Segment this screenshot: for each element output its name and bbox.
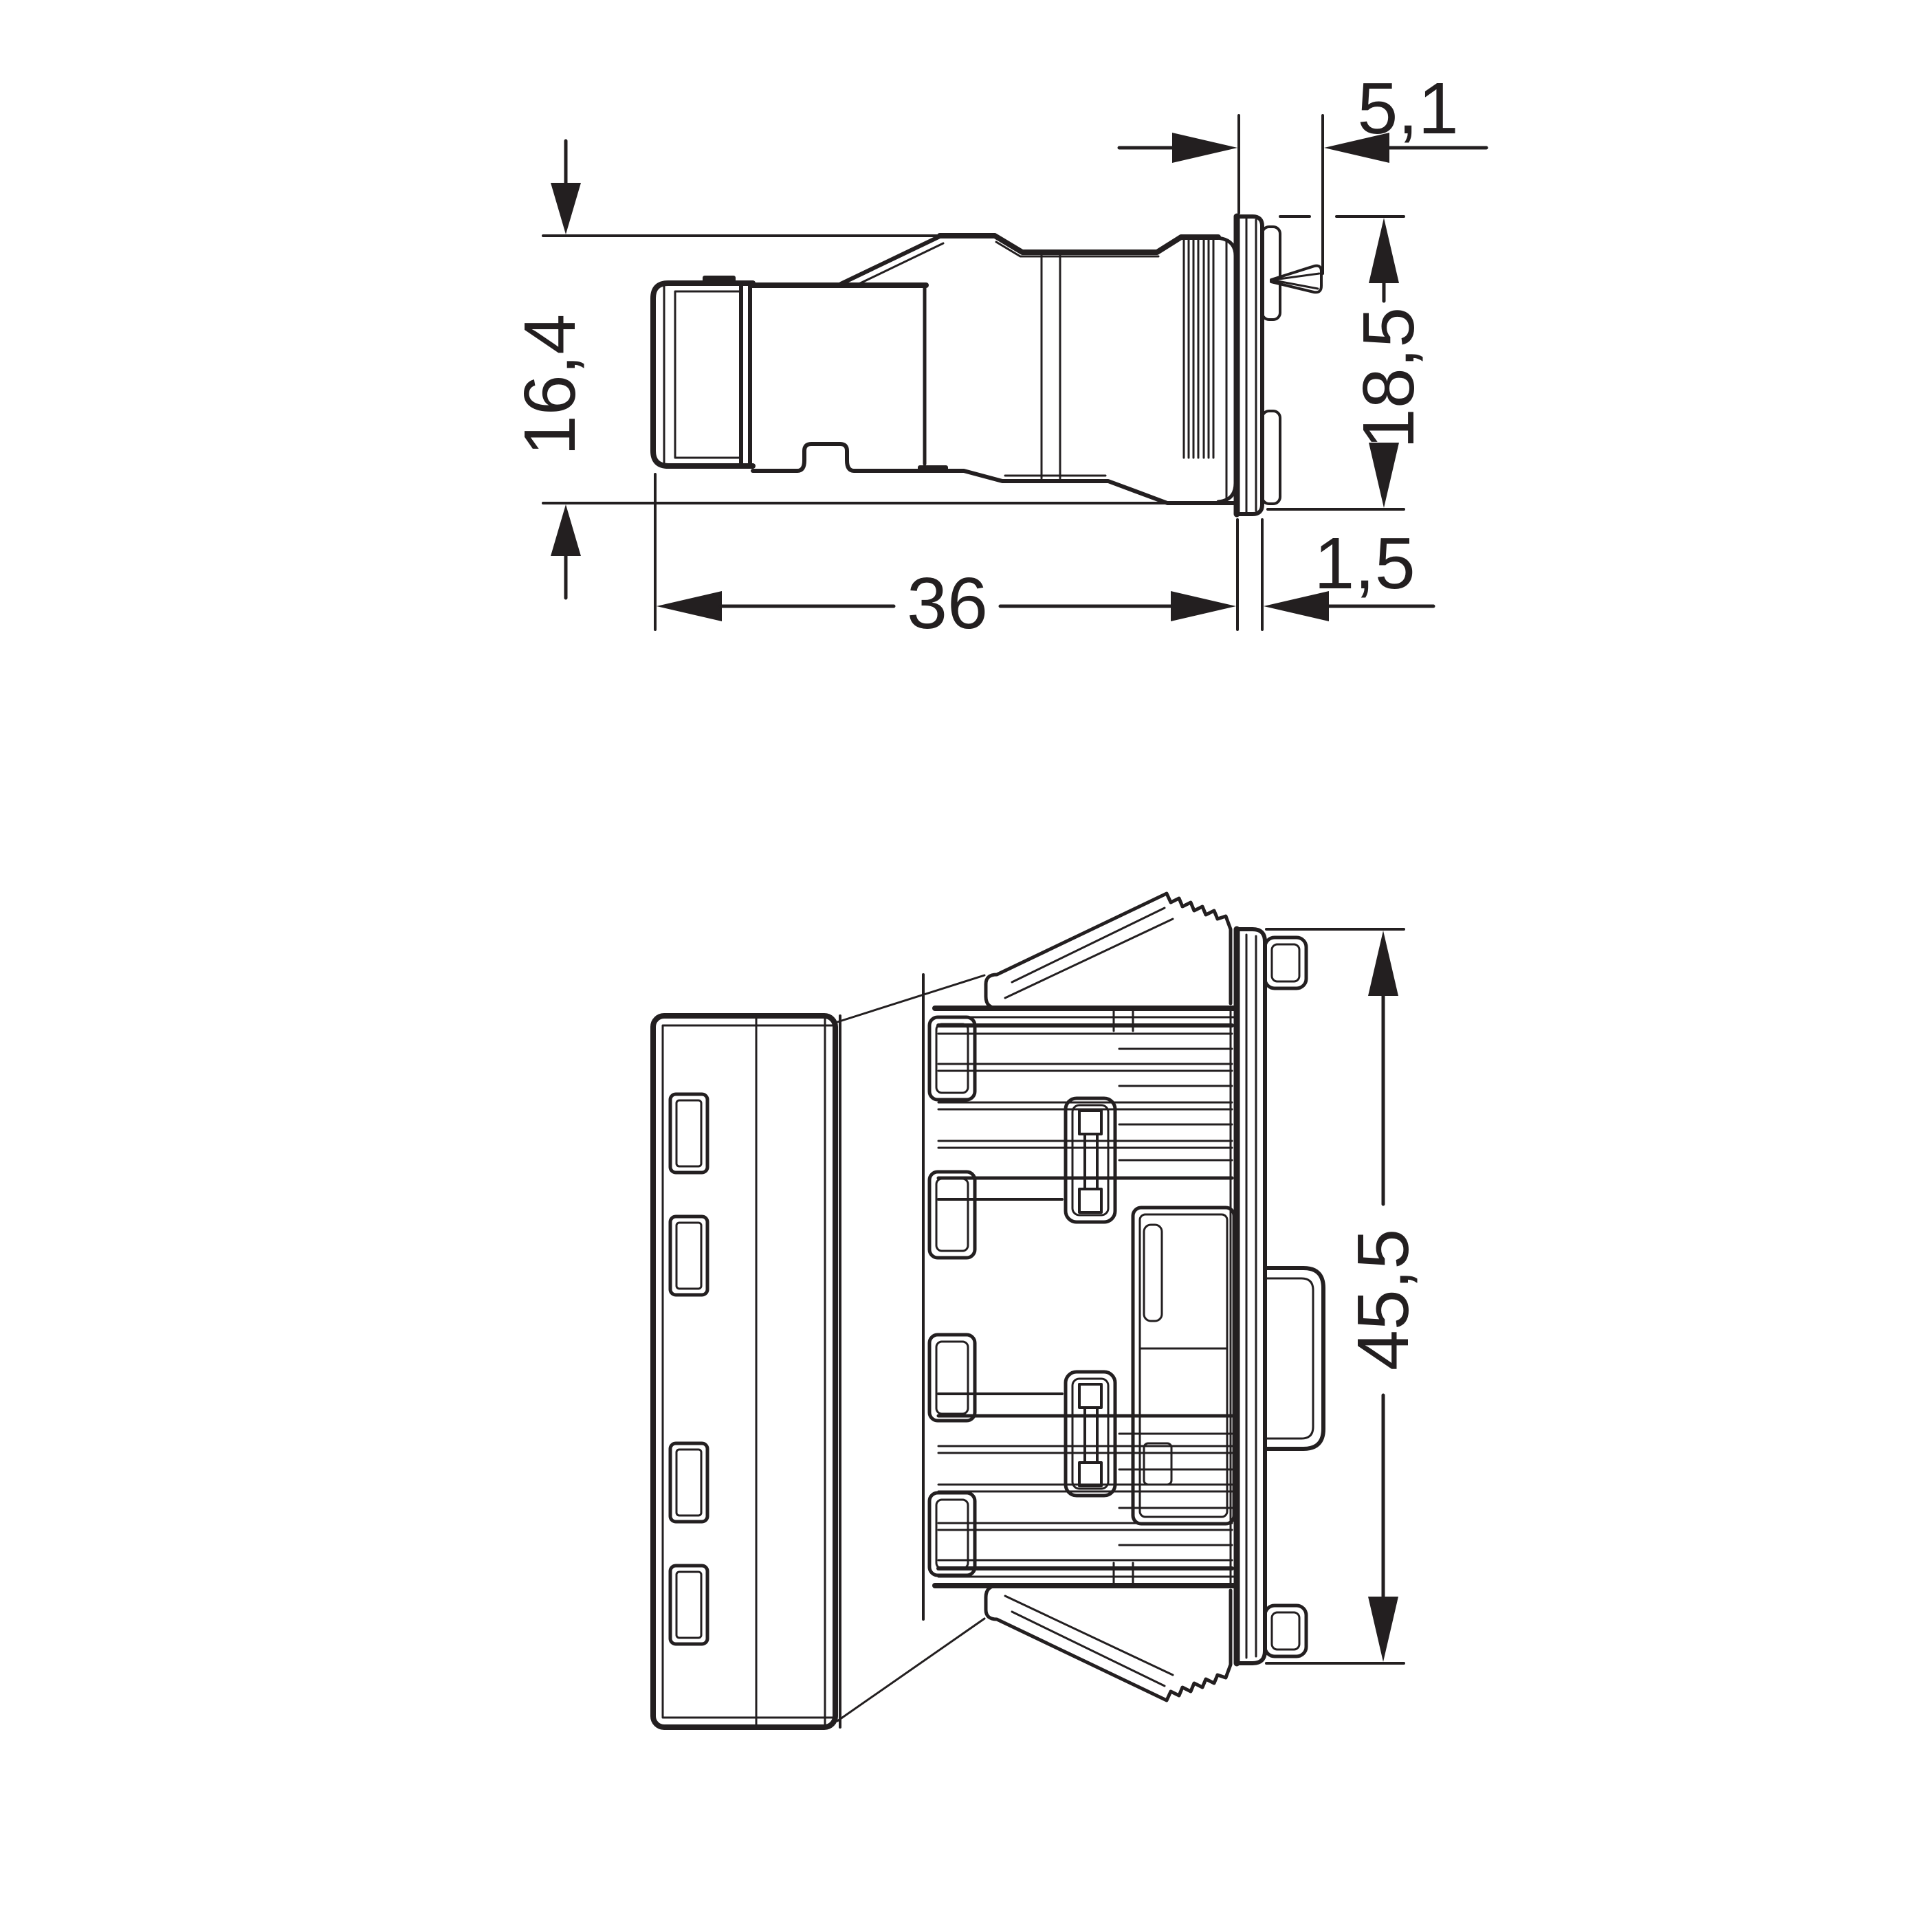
flange-ear-top-inner (1272, 944, 1299, 981)
dimension-label-5-1: 5,1 (1357, 72, 1458, 145)
latch-spring-bottom (986, 1586, 1231, 1700)
shoulder-slant-inner (855, 243, 943, 286)
side-view (653, 216, 1321, 514)
key-block (1079, 1384, 1101, 1408)
panel-grip-hatch (1184, 238, 1213, 458)
dimension-label-45-5: 45,5 (1347, 1229, 1420, 1370)
front-tube-collar (741, 283, 750, 466)
flange-ear-bottom-inner (1272, 1612, 1299, 1650)
technical-drawing-canvas: 5,1 16,4 18,5 36 1,5 45,5 (0, 0, 1916, 1932)
boss-inner (936, 1179, 968, 1251)
arrow-head-left (657, 591, 722, 621)
flange-outline (1237, 216, 1262, 514)
latch-spring-top-inner (837, 908, 1173, 1022)
body-top-profile (940, 236, 1218, 252)
slot-inner (676, 1100, 701, 1166)
window-inner (1140, 1214, 1227, 1517)
front-tube-inner-wall (675, 291, 741, 458)
window-notch (1144, 1443, 1171, 1485)
dimension-label-18-5: 18,5 (1352, 307, 1425, 449)
plan-view (653, 893, 1323, 1727)
key-slot-lower (1066, 1372, 1115, 1496)
flange-tab-bottom (1262, 411, 1280, 504)
slot-inner (676, 1223, 701, 1289)
window-outline (1133, 1208, 1234, 1524)
flange-inner-lines (1246, 219, 1256, 512)
connector-dimension-drawing (0, 0, 1916, 1932)
flange-outline (1237, 929, 1265, 1663)
window-slot (1144, 1225, 1162, 1321)
key-block (1079, 1189, 1101, 1212)
arrow-head-right (1171, 591, 1236, 621)
release-window (1133, 1208, 1234, 1524)
slot-inner (676, 1572, 701, 1638)
key-block (1079, 1111, 1101, 1134)
arrow-head-right (1172, 133, 1237, 163)
latch-spring-top (986, 893, 1231, 1008)
collar-right-wall (756, 1017, 825, 1726)
slot-inner (676, 1450, 701, 1515)
arrow-head-up (1369, 218, 1399, 283)
top-coding-tab (703, 276, 736, 283)
front-tube-outline (653, 283, 753, 466)
arrow-head-down (1369, 443, 1399, 508)
dimension-label-36: 36 (907, 567, 988, 640)
collar-outline (653, 1016, 835, 1727)
central-band-edges (938, 1199, 1062, 1394)
shoulder-slant (841, 236, 940, 284)
coding-slots (670, 1094, 707, 1644)
collar-inner-lines (663, 1025, 834, 1718)
arrow-head-down (1368, 1597, 1398, 1662)
key-block (1079, 1463, 1101, 1486)
flange-inner-lines (1246, 935, 1256, 1658)
boss-inner (936, 1500, 968, 1568)
key-inner (1072, 1379, 1108, 1489)
pull-handle (1265, 1268, 1323, 1449)
arrow-head-up (1368, 931, 1398, 996)
dimension-label-1-5: 1,5 (1314, 527, 1415, 600)
arrow-head-down (551, 183, 581, 234)
latch-spring-bottom-inner (837, 1596, 1173, 1721)
boss-inner (936, 1342, 968, 1414)
body-inner-verticals (1042, 254, 1060, 478)
dimension-label-16-4: 16,4 (514, 314, 586, 456)
key-slot-upper (1066, 1098, 1115, 1222)
flange-tab-top (1262, 227, 1280, 320)
pull-handle-inner (1265, 1278, 1313, 1439)
key-inner (1072, 1105, 1108, 1215)
key-bars (1085, 1134, 1097, 1189)
arrow-head-up (551, 504, 581, 556)
